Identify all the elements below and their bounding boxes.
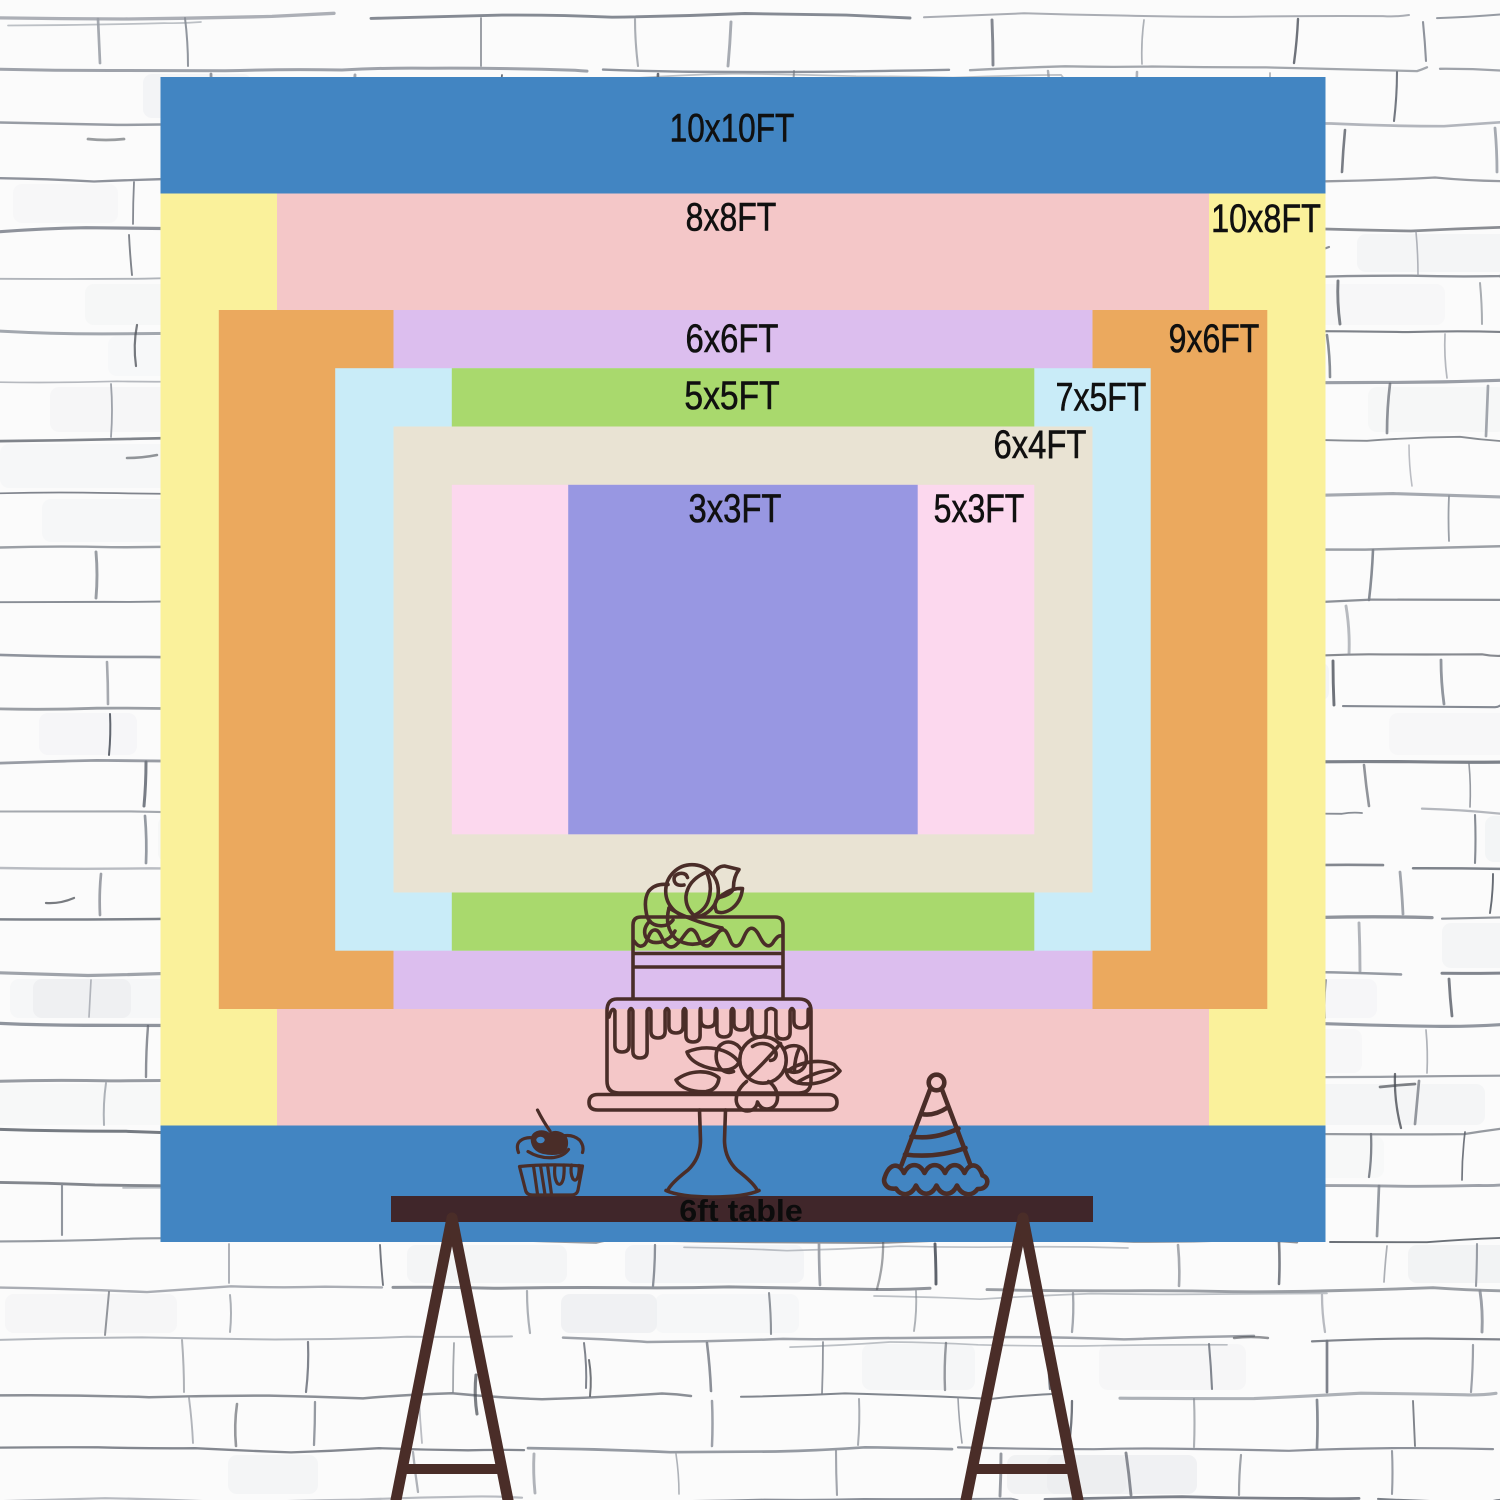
svg-text:6x6FT: 6x6FT bbox=[686, 316, 779, 361]
svg-text:5x5FT: 5x5FT bbox=[684, 373, 779, 417]
svg-text:10x10FT: 10x10FT bbox=[670, 105, 795, 150]
svg-text:3x3FT: 3x3FT bbox=[689, 486, 782, 531]
svg-text:10x8FT: 10x8FT bbox=[1211, 196, 1321, 241]
svg-text:5x3FT: 5x3FT bbox=[934, 486, 1025, 531]
svg-text:9x6FT: 9x6FT bbox=[1169, 316, 1260, 361]
svg-text:6x4FT: 6x4FT bbox=[994, 422, 1087, 467]
svg-text:7x5FT: 7x5FT bbox=[1056, 374, 1147, 419]
svg-text:8x8FT: 8x8FT bbox=[686, 194, 777, 239]
